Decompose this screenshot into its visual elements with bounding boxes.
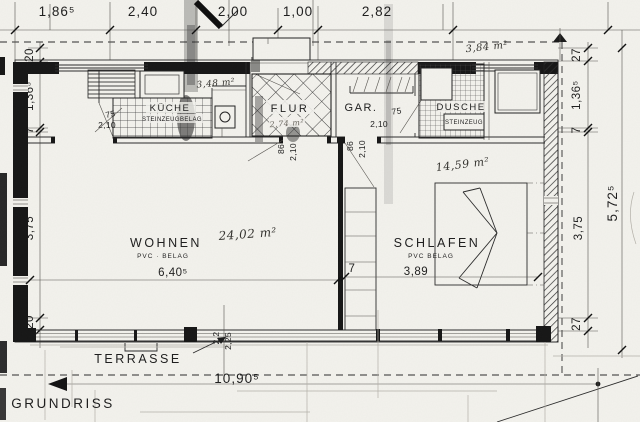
scanned-floor-plan: 1,86⁵ 2,40 2,00 1,00 2,82 20 1,36⁵ 7 3,7…: [0, 0, 640, 422]
paper-grain: [0, 0, 640, 422]
floor-plan-drawing: 1,86⁵ 2,40 2,00 1,00 2,82 20 1,36⁵ 7 3,7…: [0, 0, 640, 422]
